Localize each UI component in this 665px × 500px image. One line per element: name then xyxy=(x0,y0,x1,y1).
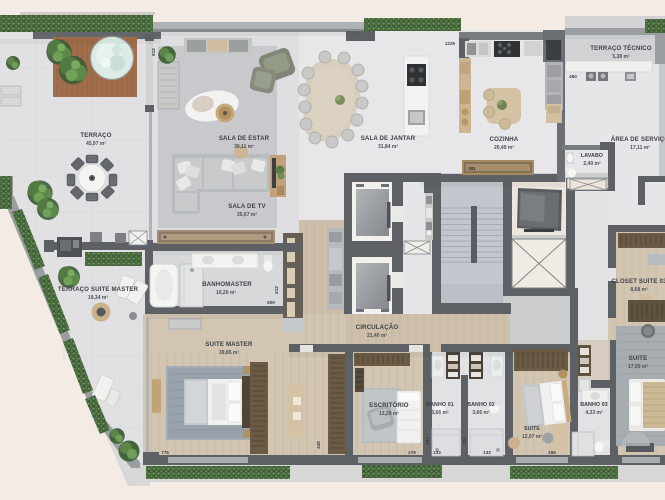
svg-text:10,20 m²: 10,20 m² xyxy=(216,290,236,296)
svg-text:775: 775 xyxy=(161,450,169,455)
svg-text:212: 212 xyxy=(274,286,279,294)
svg-text:294: 294 xyxy=(462,437,467,445)
svg-text:TERRAÇO TÉCNICO: TERRAÇO TÉCNICO xyxy=(590,44,652,52)
svg-text:448: 448 xyxy=(316,441,321,449)
svg-text:3,66 m²: 3,66 m² xyxy=(431,410,449,416)
svg-text:1225: 1225 xyxy=(445,41,456,46)
svg-text:BANHOMASTER: BANHOMASTER xyxy=(202,281,252,288)
svg-text:133: 133 xyxy=(433,450,441,455)
svg-text:SUITE: SUITE xyxy=(524,426,540,432)
svg-text:19,34 m²: 19,34 m² xyxy=(88,295,108,301)
svg-text:30,11 m²: 30,11 m² xyxy=(234,144,254,150)
svg-text:TERRAÇO SUITE MASTER: TERRAÇO SUITE MASTER xyxy=(58,286,139,293)
svg-text:CLOSET SUITE 03: CLOSET SUITE 03 xyxy=(611,278,665,285)
svg-text:2,40 m²: 2,40 m² xyxy=(583,161,601,167)
svg-text:284: 284 xyxy=(425,437,430,445)
svg-text:45,97 m²: 45,97 m² xyxy=(86,141,106,147)
svg-text:13,29 m²: 13,29 m² xyxy=(379,411,399,417)
svg-text:39,85 m²: 39,85 m² xyxy=(219,350,239,356)
svg-text:5,38 m²: 5,38 m² xyxy=(612,54,630,60)
svg-text:SALA DE JANTAR: SALA DE JANTAR xyxy=(361,135,416,142)
svg-text:21,40 m²: 21,40 m² xyxy=(367,333,387,339)
svg-text:BANHO 03: BANHO 03 xyxy=(580,402,608,408)
svg-text:812: 812 xyxy=(151,48,156,56)
svg-text:133: 133 xyxy=(483,450,491,455)
svg-text:ESCRITÓRIO: ESCRITÓRIO xyxy=(369,401,409,409)
svg-text:17,99 m²: 17,99 m² xyxy=(628,364,648,370)
svg-text:TERRAÇO: TERRAÇO xyxy=(80,132,111,139)
svg-text:381: 381 xyxy=(468,166,476,171)
svg-text:20,49 m²: 20,49 m² xyxy=(494,145,514,151)
svg-text:269: 269 xyxy=(548,450,556,455)
svg-text:12,97 m²: 12,97 m² xyxy=(522,434,542,440)
svg-text:25,67 m²: 25,67 m² xyxy=(237,212,257,218)
svg-text:SALA DE TV: SALA DE TV xyxy=(228,203,266,210)
svg-text:SALA DE ESTAR: SALA DE ESTAR xyxy=(219,135,270,142)
svg-text:BANHO 02: BANHO 02 xyxy=(467,402,495,408)
svg-text:17,11 m²: 17,11 m² xyxy=(630,145,650,151)
svg-text:SUITE MASTER: SUITE MASTER xyxy=(205,341,253,348)
svg-text:ÁREA DE SERVIÇO: ÁREA DE SERVIÇO xyxy=(611,136,665,143)
svg-text:CIRCULAÇÃO: CIRCULAÇÃO xyxy=(356,324,399,331)
svg-text:31,84 m²: 31,84 m² xyxy=(378,144,398,150)
svg-text:4,33 m²: 4,33 m² xyxy=(585,410,603,416)
svg-text:460: 460 xyxy=(569,74,577,79)
svg-text:3,66 m²: 3,66 m² xyxy=(472,410,490,416)
svg-text:SUITE: SUITE xyxy=(629,355,648,362)
svg-text:BANHO 01: BANHO 01 xyxy=(426,402,454,408)
svg-text:LAVABO: LAVABO xyxy=(581,153,603,159)
svg-text:509: 509 xyxy=(267,300,275,305)
svg-text:279: 279 xyxy=(408,450,416,455)
svg-text:COZINHA: COZINHA xyxy=(490,136,519,143)
svg-text:8,68 m²: 8,68 m² xyxy=(630,287,648,293)
